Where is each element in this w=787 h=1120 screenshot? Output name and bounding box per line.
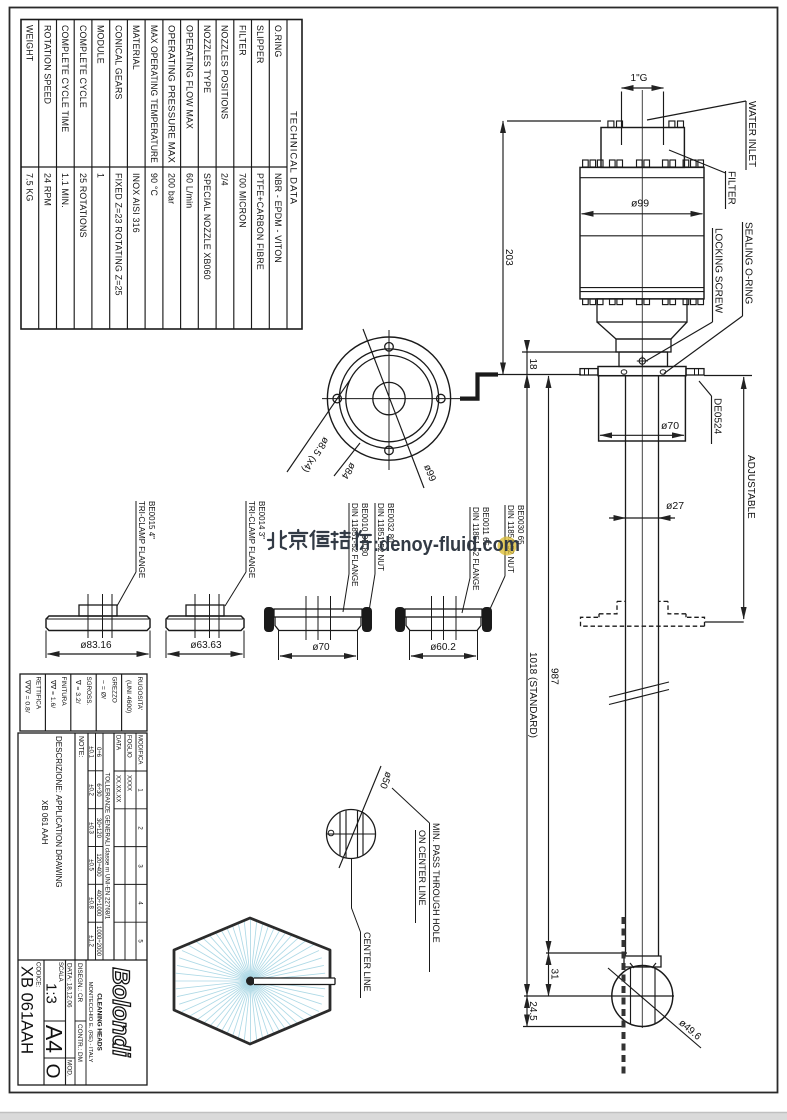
svg-text:MOD.: MOD. <box>66 1060 73 1077</box>
svg-text:MONTECCHIO E. (RE) - ITALY: MONTECCHIO E. (RE) - ITALY <box>87 982 93 1063</box>
svg-text:31: 31 <box>549 968 560 980</box>
svg-text:ROTATION SPEED: ROTATION SPEED <box>42 25 52 104</box>
svg-text:SPECIAL NOZZLE XB060: SPECIAL NOZZLE XB060 <box>202 173 212 280</box>
svg-text:30÷120: 30÷120 <box>95 818 101 839</box>
svg-text:90 °C: 90 °C <box>149 173 159 197</box>
svg-text:1.1 MIN.: 1.1 MIN. <box>60 173 70 208</box>
svg-text:COMPLETE CYCLE: COMPLETE CYCLE <box>78 25 88 108</box>
svg-text:1:3: 1:3 <box>43 983 60 1004</box>
svg-text:18: 18 <box>527 358 538 370</box>
svg-text:NBR - EPDM - VITON: NBR - EPDM - VITON <box>273 173 283 263</box>
svg-text:CONTR.: DM: CONTR.: DM <box>76 1024 83 1062</box>
svg-text:DATA: DATA <box>115 735 121 750</box>
svg-text:O.RING: O.RING <box>273 25 283 57</box>
svg-text:24.5: 24.5 <box>527 1001 538 1021</box>
svg-text:∇ = 3.2/: ∇ = 3.2/ <box>74 679 82 704</box>
svg-text:FIXED Z=23 ROTATING Z=25: FIXED Z=23 ROTATING Z=25 <box>113 173 123 296</box>
svg-text:CONICAL GEARS: CONICAL GEARS <box>113 25 123 100</box>
svg-text:203: 203 <box>503 249 514 266</box>
svg-text:MODIFICA: MODIFICA <box>137 735 143 764</box>
svg-text:FOGLIO: FOGLIO <box>126 735 132 758</box>
svg-text:LOCKING SCREW: LOCKING SCREW <box>713 228 724 314</box>
svg-text:6÷30: 6÷30 <box>95 783 101 797</box>
svg-text:O: O <box>42 1064 63 1079</box>
svg-text:NOTE:: NOTE: <box>77 736 84 757</box>
svg-text:TECHNICAL DATA: TECHNICAL DATA <box>288 111 299 205</box>
svg-text:OPERATING PRESSURE MAX: OPERATING PRESSURE MAX <box>167 25 177 163</box>
svg-text:DESCRIZIONE: APPLICATION DRA: DESCRIZIONE: APPLICATION DRAWING <box>54 736 63 888</box>
svg-text:ø50: ø50 <box>377 770 394 791</box>
svg-text:SCALA: SCALA <box>57 962 63 982</box>
svg-text:∇∇∇ = 0.8/: ∇∇∇ = 0.8/ <box>23 679 31 713</box>
svg-text:DISEGN.: CR: DISEGN.: CR <box>76 963 83 1002</box>
svg-text:±1.2: ±1.2 <box>88 935 94 947</box>
svg-text:DE0524: DE0524 <box>712 398 723 435</box>
svg-text:1"G: 1"G <box>631 73 648 84</box>
svg-text:±0.3: ±0.3 <box>88 822 94 834</box>
svg-text:ø8.5 (x4): ø8.5 (x4) <box>299 435 330 474</box>
svg-text:1000÷2000: 1000÷2000 <box>95 926 101 957</box>
svg-text:FILTER: FILTER <box>238 25 248 56</box>
svg-text:MIN. PASS THROUGH HOLE: MIN. PASS THROUGH HOLE <box>431 823 441 943</box>
svg-text:SEALING O-RING: SEALING O-RING <box>743 222 754 304</box>
svg-text:OPERATING FLOW MAX: OPERATING FLOW MAX <box>184 25 194 129</box>
svg-text:COMPLETE CYCLE TIME: COMPLETE CYCLE TIME <box>60 25 70 132</box>
svg-text:TOLLERANZE GENERALI classe: TOLLERANZE GENERALI classe m UNI-EN 2276… <box>104 773 111 920</box>
svg-text:RETTIFICA: RETTIFICA <box>34 677 41 710</box>
svg-text:NOZZLES TYPE: NOZZLES TYPE <box>202 25 212 93</box>
svg-text:5: 5 <box>137 939 143 943</box>
svg-text:NOZZLES POSITIONS: NOZZLES POSITIONS <box>220 25 230 119</box>
svg-text:MODULE: MODULE <box>96 25 106 64</box>
svg-text:ø70: ø70 <box>312 642 330 653</box>
svg-text:RUGOSITA': RUGOSITA' <box>136 677 143 711</box>
svg-text:0÷6: 0÷6 <box>95 747 101 758</box>
svg-text:3: 3 <box>137 864 143 868</box>
svg-text:MATERIAL: MATERIAL <box>131 25 141 70</box>
svg-text:ø83.16: ø83.16 <box>80 640 112 651</box>
svg-text:XB 061 AAH: XB 061 AAH <box>40 800 49 845</box>
svg-text:SGROSS.: SGROSS. <box>85 677 92 706</box>
svg-text:1018 (STANDARD): 1018 (STANDARD) <box>527 652 538 738</box>
svg-text:ø99: ø99 <box>631 198 649 210</box>
svg-text:SLIPPER: SLIPPER <box>255 25 265 64</box>
svg-text:CENTER LINE: CENTER LINE <box>362 932 372 992</box>
svg-text:WATER INLET: WATER INLET <box>746 101 757 167</box>
svg-text:XXXX: XXXX <box>126 775 132 791</box>
svg-text:XB 061AAH: XB 061AAH <box>18 966 36 1054</box>
svg-text:24 RPM: 24 RPM <box>42 173 52 206</box>
svg-text:2/4: 2/4 <box>220 173 230 186</box>
svg-text:GREZZO: GREZZO <box>111 677 118 703</box>
svg-text:TRI-CLAMP FLANGE: TRI-CLAMP FLANGE <box>137 501 146 578</box>
svg-text:FILTER: FILTER <box>726 171 737 205</box>
svg-text:BE0015 4": BE0015 4" <box>147 501 156 539</box>
svg-text:~ = Ø/: ~ = Ø/ <box>100 680 107 699</box>
svg-text:ON CENTER LINE: ON CENTER LINE <box>417 830 427 906</box>
svg-text:BE0014 3": BE0014 3" <box>257 501 266 539</box>
svg-text:FINITURA: FINITURA <box>60 677 67 707</box>
svg-text:700 MICRON: 700 MICRON <box>238 173 248 228</box>
svg-text:(UNI 4600): (UNI 4600) <box>125 680 132 713</box>
svg-text:TRI-CLAMP FLANGE: TRI-CLAMP FLANGE <box>247 501 256 578</box>
svg-text:987: 987 <box>549 668 560 685</box>
svg-text:DATA: 18.12.06: DATA: 18.12.06 <box>66 963 73 1008</box>
svg-text:Bolondi: Bolondi <box>107 967 134 1058</box>
svg-text:±0.1: ±0.1 <box>88 746 94 758</box>
svg-text:ø99: ø99 <box>421 463 438 483</box>
svg-text:WEIGHT: WEIGHT <box>25 25 35 62</box>
svg-text:ø63.63: ø63.63 <box>190 640 222 651</box>
svg-text:ø27: ø27 <box>666 500 684 512</box>
svg-text:±0.8: ±0.8 <box>88 897 94 909</box>
svg-text:200 bar: 200 bar <box>167 173 177 204</box>
svg-text:∇∇ = 1.6/: ∇∇ = 1.6/ <box>49 679 57 708</box>
svg-text:1: 1 <box>96 173 106 178</box>
svg-text:MAX OPERATING TEMPERATURE: MAX OPERATING TEMPERATURE <box>149 25 159 163</box>
svg-text:60 L/min: 60 L/min <box>184 173 194 208</box>
svg-text::denoy-fluid.com: :denoy-fluid.com <box>373 533 520 556</box>
svg-text:25 ROTATIONS: 25 ROTATIONS <box>78 173 88 238</box>
svg-text:400÷1000: 400÷1000 <box>95 890 101 917</box>
svg-text:7.5 KG: 7.5 KG <box>25 173 35 202</box>
svg-text:±0.5: ±0.5 <box>88 859 94 871</box>
svg-text:1: 1 <box>137 788 143 792</box>
svg-text:INOX AISI 316: INOX AISI 316 <box>131 173 141 233</box>
svg-text:±0.2: ±0.2 <box>88 784 94 796</box>
svg-text:ø84: ø84 <box>338 460 357 481</box>
svg-text:ø70: ø70 <box>661 420 679 432</box>
svg-text:A4: A4 <box>41 1025 67 1053</box>
svg-text:ADJUSTABLE: ADJUSTABLE <box>745 455 756 519</box>
svg-text:PTFE+CARBON FIBRE: PTFE+CARBON FIBRE <box>255 173 265 270</box>
svg-text:120÷400: 120÷400 <box>95 853 101 877</box>
svg-text:XX.XX.XX: XX.XX.XX <box>115 775 121 802</box>
svg-text:ø60.2: ø60.2 <box>430 642 456 653</box>
svg-text:2: 2 <box>137 826 143 830</box>
svg-text:4: 4 <box>137 901 143 905</box>
svg-text:CLEANING HEADS: CLEANING HEADS <box>96 993 103 1051</box>
